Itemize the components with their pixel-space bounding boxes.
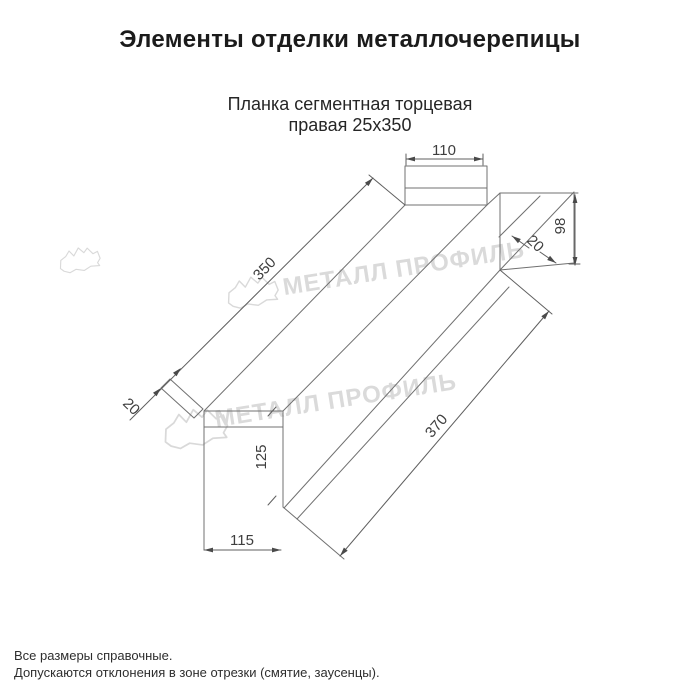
dim-label-20-right: 20 <box>523 232 547 256</box>
dim-flange-width-top: 110 <box>406 142 483 165</box>
dim-label-98: 98 <box>552 218 569 235</box>
technical-drawing: МЕТАЛЛ ПРОФИЛЬ МЕТАЛЛ ПРОФИЛЬ <box>0 0 700 700</box>
catalog-page: Элементы отделки металлочерепицы Планка … <box>0 0 700 700</box>
strip-edge-bottom <box>284 270 500 508</box>
dim-label-125: 125 <box>253 444 270 469</box>
watermark-text: МЕТАЛЛ ПРОФИЛЬ <box>213 368 459 433</box>
part-outline <box>161 166 578 559</box>
dimension-annotations: 110 98 20 350 <box>119 142 580 556</box>
far-end-fold-edge <box>499 196 540 237</box>
footer-note-1: Все размеры справочные. <box>14 647 380 664</box>
footer-note-2: Допускаются отклонения в зоне отрезки (с… <box>14 664 380 681</box>
dim-label-110: 110 <box>432 142 456 159</box>
far-end-flange-face <box>405 166 487 205</box>
dim-length-bottom: 370 <box>340 270 552 556</box>
footer-notes: Все размеры справочные. Допускаются откл… <box>14 647 380 681</box>
near-end-cut-edge <box>283 507 344 559</box>
watermark-text: МЕТАЛЛ ПРОФИЛЬ <box>281 236 527 301</box>
watermark-layer: МЕТАЛЛ ПРОФИЛЬ МЕТАЛЛ ПРОФИЛЬ <box>58 236 527 450</box>
dim-label-370: 370 <box>422 411 451 441</box>
near-end-face <box>204 411 283 550</box>
far-end-bend-edge <box>487 193 500 205</box>
dim-label-115: 115 <box>230 532 254 549</box>
dim-face-height-right: 98 <box>552 194 580 266</box>
dim-face-width-front: 115 <box>204 532 281 552</box>
dim-label-20-left: 20 <box>119 395 143 419</box>
mp-logo-watermark <box>58 245 102 274</box>
